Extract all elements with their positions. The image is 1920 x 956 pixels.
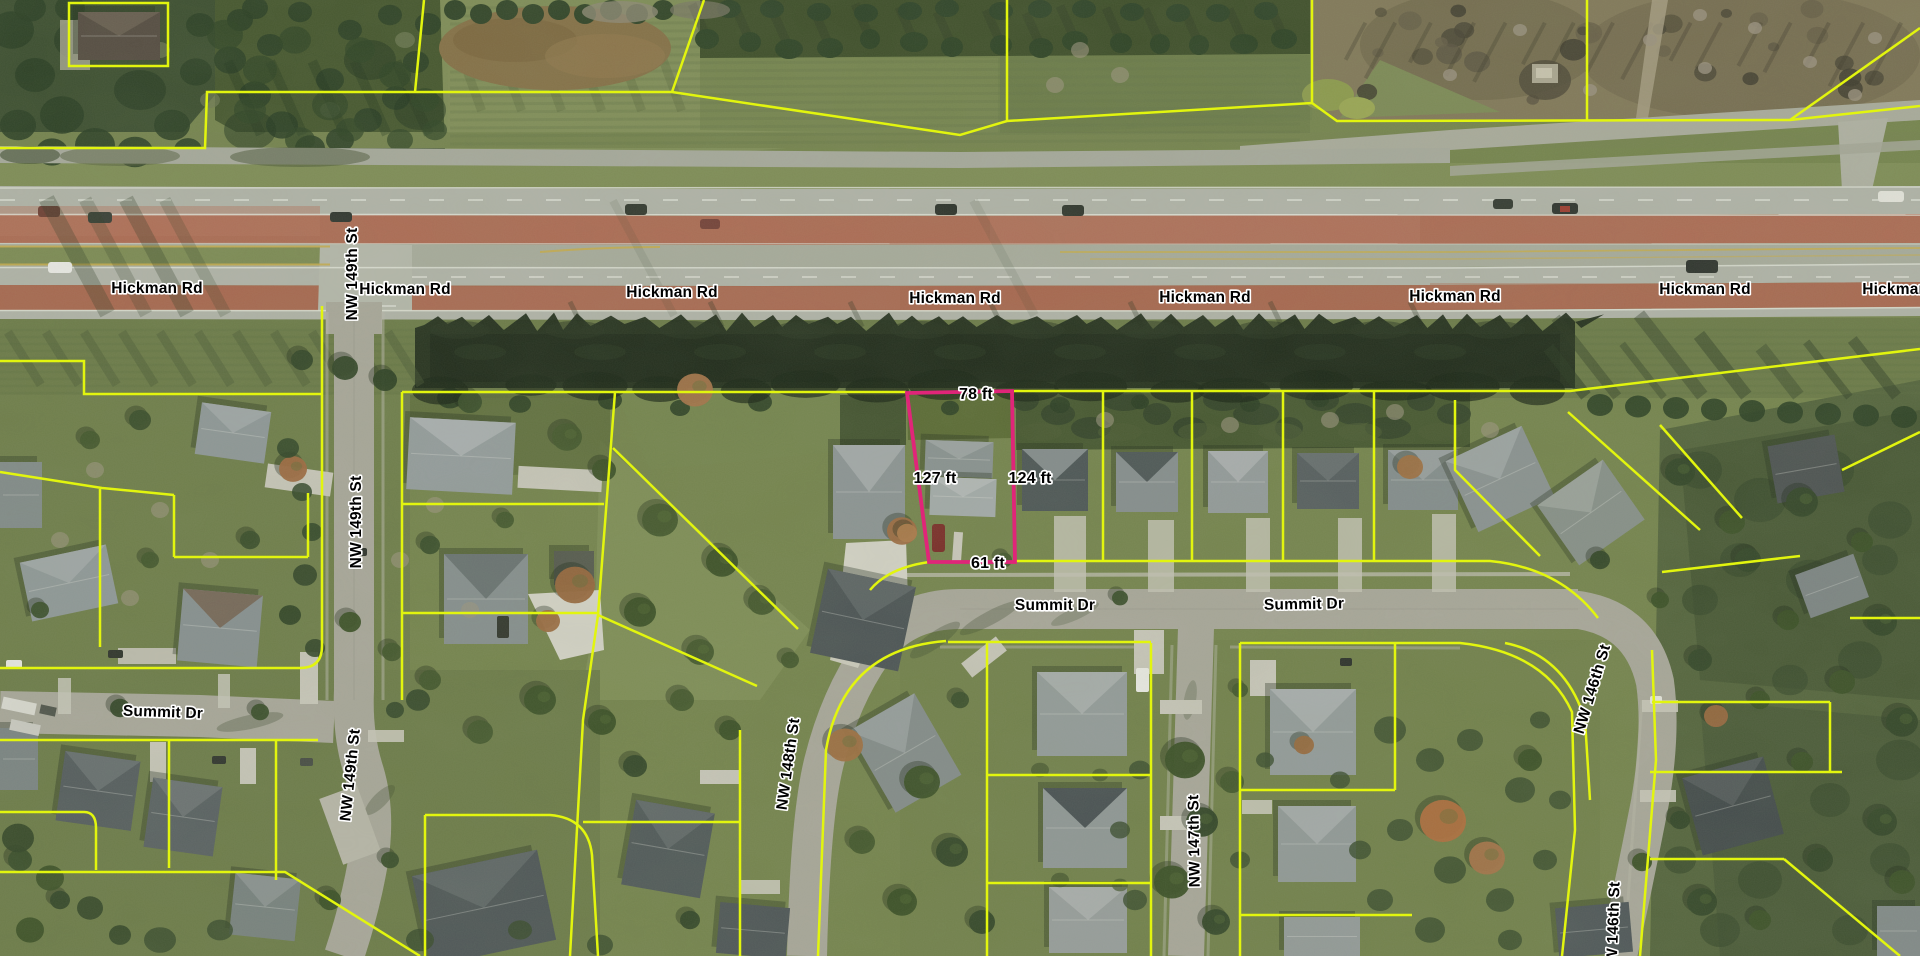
svg-text:Hickman Rd: Hickman Rd bbox=[1862, 281, 1920, 298]
svg-text:Hickman Rd: Hickman Rd bbox=[111, 280, 203, 297]
svg-text:124 ft: 124 ft bbox=[1009, 470, 1052, 487]
svg-text:NW 147th St: NW 147th St bbox=[1185, 795, 1204, 888]
svg-text:Hickman Rd: Hickman Rd bbox=[626, 284, 718, 301]
svg-text:NW 149th St: NW 149th St bbox=[348, 476, 365, 569]
svg-text:Hickman Rd: Hickman Rd bbox=[1159, 289, 1251, 306]
svg-text:NW 146th St: NW 146th St bbox=[1603, 881, 1623, 956]
svg-text:Hickman Rd: Hickman Rd bbox=[909, 290, 1001, 307]
svg-text:Hickman Rd: Hickman Rd bbox=[359, 281, 451, 298]
svg-text:NW 149th St: NW 149th St bbox=[344, 228, 361, 321]
svg-text:Summit Dr: Summit Dr bbox=[123, 703, 204, 723]
svg-text:78 ft: 78 ft bbox=[959, 386, 993, 403]
svg-text:127 ft: 127 ft bbox=[914, 470, 957, 487]
svg-text:Hickman Rd: Hickman Rd bbox=[1659, 281, 1751, 298]
svg-text:Hickman Rd: Hickman Rd bbox=[1409, 288, 1501, 305]
svg-text:Summit Dr: Summit Dr bbox=[1264, 595, 1344, 613]
svg-text:Summit Dr: Summit Dr bbox=[1015, 597, 1095, 614]
svg-text:61 ft: 61 ft bbox=[971, 555, 1005, 572]
